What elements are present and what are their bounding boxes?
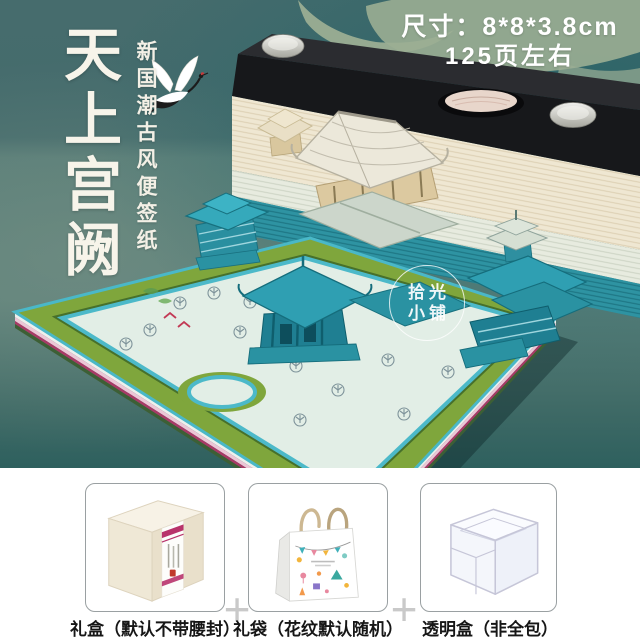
size-info: 尺寸：8*8*3.8cm 125页左右 (390, 12, 630, 72)
product-promo-image: 天上宫阙 新国潮古风便签纸 尺寸：8*8*3.8cm 125页左右 拾光 小铺 (0, 0, 640, 640)
gift-bag-icon (250, 485, 386, 609)
package-options-section: + + 礼盒（默认不带腰封） 礼袋（花纹默认随机） 透明盒（非全包） (0, 468, 640, 640)
option-gift-box (85, 483, 225, 612)
product-title-vertical: 天上宫阙 (46, 24, 130, 296)
hero-photo-section: 天上宫阙 新国潮古风便签纸 尺寸：8*8*3.8cm 125页左右 拾光 小铺 (0, 0, 640, 468)
gift-box-icon (87, 485, 223, 609)
product-subtitle-vertical: 新国潮古风便签纸 (130, 40, 160, 270)
option-gift-bag (248, 483, 388, 612)
watermark-line2: 小铺 (404, 303, 450, 324)
watermark-line1: 拾光 (404, 282, 450, 303)
courtyard-pond (178, 372, 266, 412)
page-count-line: 125页左右 (390, 42, 630, 72)
option-clear-box (420, 483, 557, 612)
clear-box-icon (422, 485, 555, 609)
shop-watermark: 拾光 小铺 (389, 265, 465, 341)
pen-holder-hole (438, 89, 524, 118)
size-line: 尺寸：8*8*3.8cm (390, 12, 630, 42)
option-clear-box-label: 透明盒（非全包） (390, 615, 590, 640)
option-gift-bag-label: 礼袋（花纹默认随机） (218, 615, 418, 640)
magnet-disc-left (262, 35, 304, 58)
magnet-disc-right (550, 103, 596, 128)
